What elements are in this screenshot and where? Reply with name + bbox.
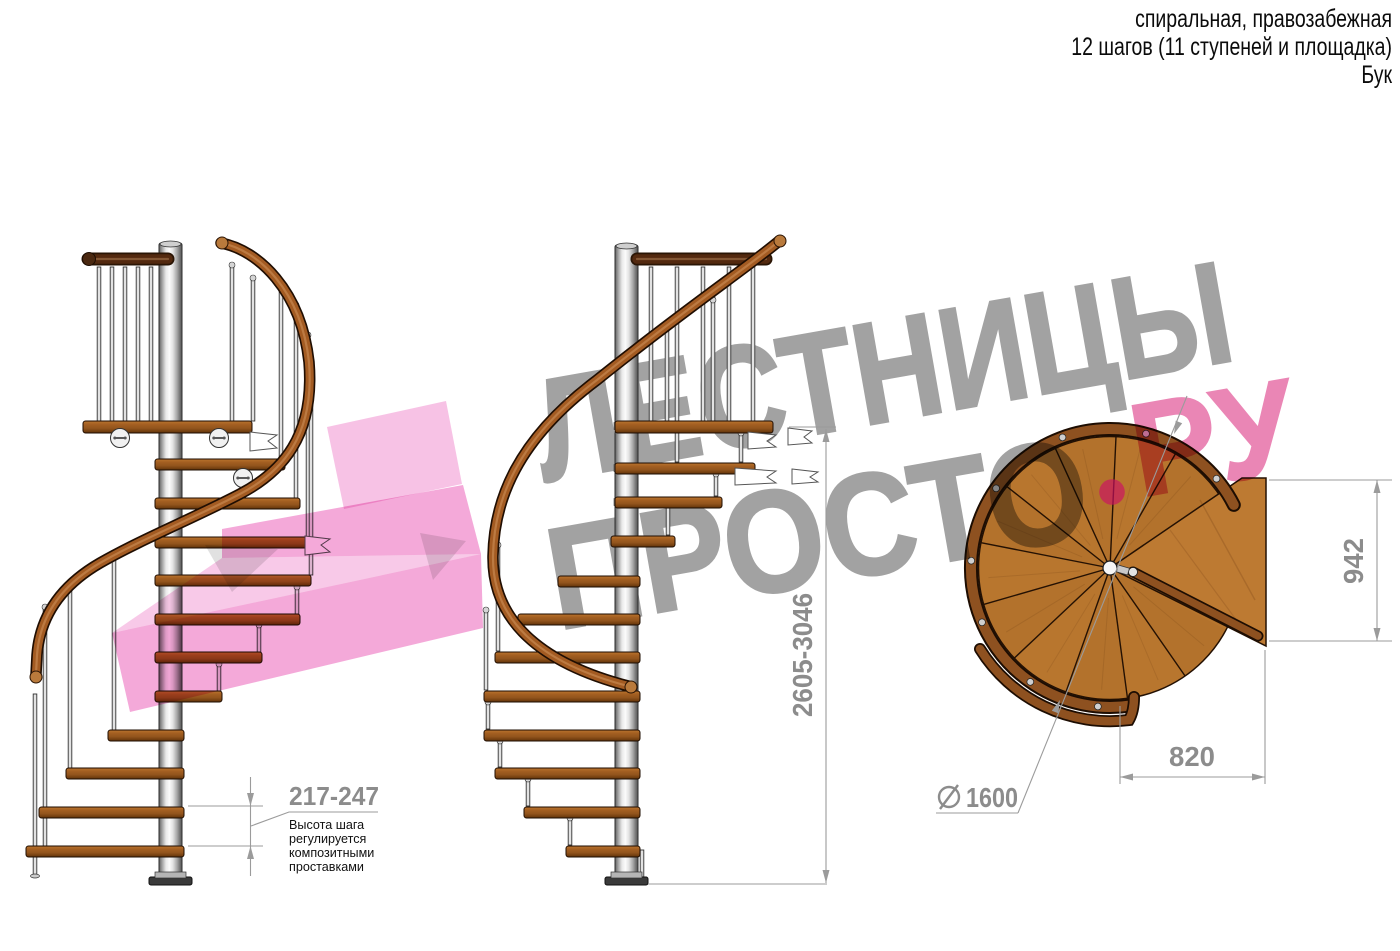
svg-text:942: 942 <box>1338 538 1369 584</box>
svg-text:РУ: РУ <box>1119 351 1309 525</box>
svg-text:2605-3046: 2605-3046 <box>787 593 818 717</box>
svg-text:проставками: проставками <box>289 860 364 874</box>
svg-text:спиральная, правозабежная: спиральная, правозабежная <box>1135 5 1392 33</box>
svg-text:820: 820 <box>1169 741 1215 772</box>
svg-text:Бук: Бук <box>1361 61 1392 89</box>
svg-text:композитными: композитными <box>289 846 374 860</box>
svg-text:регулируется: регулируется <box>289 832 366 846</box>
svg-text:1600: 1600 <box>966 782 1018 813</box>
svg-text:217-247: 217-247 <box>289 781 379 811</box>
svg-text:12 шагов (11 ступеней и площад: 12 шагов (11 ступеней и площадка) <box>1071 33 1392 61</box>
svg-text:Высота шага: Высота шага <box>289 818 364 832</box>
